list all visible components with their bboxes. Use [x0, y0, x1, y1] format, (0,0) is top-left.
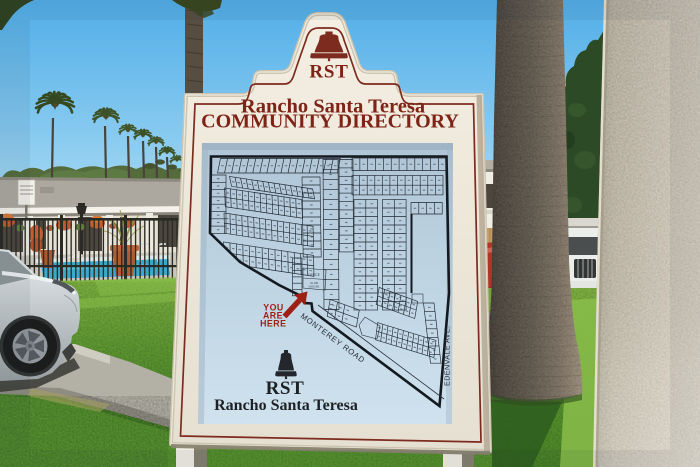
svg-text:OFFICE: OFFICE — [308, 273, 320, 277]
svg-text:HOUSE: HOUSE — [309, 285, 320, 289]
svg-text:Rancho Santa Teresa: Rancho Santa Teresa — [214, 397, 358, 414]
svg-text:COMMUNITY DIRECTORY: COMMUNITY DIRECTORY — [201, 111, 459, 133]
svg-text:RST: RST — [266, 378, 305, 399]
svg-text:RST: RST — [309, 62, 348, 83]
svg-text:EDENVALE AVE.: EDENVALE AVE. — [443, 326, 452, 386]
svg-text:HERE: HERE — [260, 319, 286, 329]
